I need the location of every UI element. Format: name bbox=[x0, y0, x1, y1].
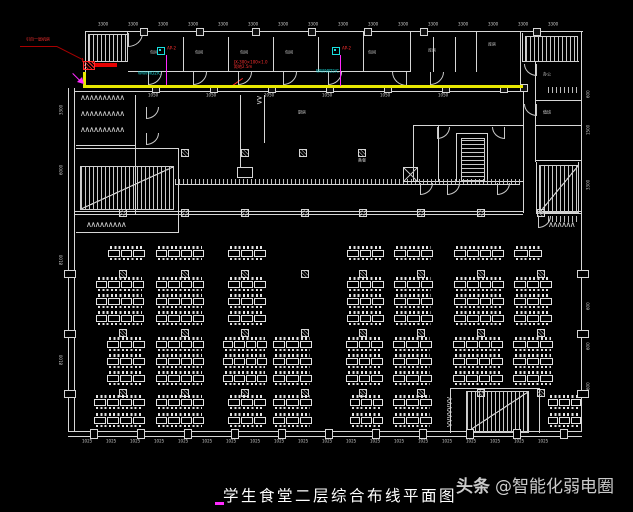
chair-row bbox=[396, 323, 431, 326]
chair-row bbox=[456, 294, 502, 297]
dining-table-strip bbox=[394, 294, 433, 308]
dim-label-top: 3300 bbox=[458, 22, 468, 27]
table bbox=[527, 315, 539, 322]
wall bbox=[175, 184, 520, 185]
table bbox=[228, 281, 240, 288]
table bbox=[228, 250, 240, 257]
table bbox=[540, 341, 553, 348]
table bbox=[181, 358, 192, 365]
table bbox=[156, 399, 167, 406]
table bbox=[168, 399, 179, 406]
chair-row bbox=[98, 323, 142, 326]
table bbox=[347, 298, 359, 305]
table bbox=[181, 375, 192, 382]
room-label: 备餐 bbox=[358, 158, 366, 163]
structural-column bbox=[417, 209, 425, 217]
table-row bbox=[453, 358, 503, 365]
structural-column bbox=[181, 209, 189, 217]
chair-row bbox=[275, 425, 310, 428]
door-arc bbox=[146, 133, 159, 145]
table bbox=[223, 375, 233, 382]
chair-row bbox=[515, 371, 551, 374]
table bbox=[350, 399, 360, 406]
table bbox=[393, 358, 405, 365]
table-row bbox=[514, 298, 552, 305]
table bbox=[371, 341, 383, 348]
table bbox=[540, 281, 552, 288]
table-row bbox=[347, 281, 384, 288]
table bbox=[479, 358, 491, 365]
dim-label-bottom: 1025 bbox=[202, 439, 212, 444]
chair-row bbox=[275, 383, 310, 386]
chair-row bbox=[456, 311, 502, 314]
wall bbox=[456, 133, 488, 134]
table bbox=[479, 341, 491, 348]
table bbox=[540, 358, 553, 365]
chair-row bbox=[516, 323, 550, 326]
chair-row bbox=[275, 395, 310, 398]
chair-row bbox=[109, 349, 143, 352]
table bbox=[393, 341, 405, 348]
dining-table-strip bbox=[454, 277, 504, 291]
table bbox=[359, 358, 371, 365]
table bbox=[193, 399, 204, 406]
table bbox=[420, 399, 432, 406]
table bbox=[254, 250, 266, 257]
chair-row bbox=[395, 383, 430, 386]
dining-table-strip bbox=[514, 246, 542, 260]
table bbox=[480, 315, 492, 322]
dim-label-bottom: 1025 bbox=[178, 439, 188, 444]
chair-row bbox=[348, 371, 381, 374]
chair-row bbox=[456, 289, 502, 292]
table bbox=[407, 250, 419, 257]
window-mullion bbox=[278, 429, 286, 439]
table bbox=[420, 341, 432, 348]
table bbox=[168, 281, 179, 288]
dining-table-strip bbox=[393, 337, 432, 351]
table-row bbox=[394, 298, 433, 305]
table bbox=[94, 399, 106, 406]
dining-table-strip bbox=[228, 277, 266, 291]
table bbox=[168, 341, 179, 348]
staircase bbox=[539, 165, 579, 213]
window-mullion bbox=[577, 270, 589, 278]
table bbox=[372, 250, 384, 257]
table bbox=[406, 399, 418, 406]
table bbox=[241, 250, 253, 257]
dim-label-bottom: 1025 bbox=[226, 439, 236, 444]
distribution-box bbox=[83, 61, 95, 70]
table bbox=[394, 298, 406, 305]
chair-row bbox=[456, 306, 502, 309]
door-arc bbox=[146, 107, 159, 119]
fixture-zigzag: ∧∧∧∧∧∧∧∧∧∧ bbox=[80, 127, 124, 133]
watermark-handle: @智能化弱电圈 bbox=[495, 477, 614, 497]
dining-table-strip bbox=[454, 294, 504, 308]
room-label: 包间 bbox=[195, 50, 203, 55]
chair-row bbox=[230, 425, 264, 428]
chair-row bbox=[98, 277, 142, 280]
dining-table-strip bbox=[156, 294, 204, 308]
table bbox=[479, 375, 491, 382]
dim-label-bottom: 1025 bbox=[370, 439, 380, 444]
room-label: 1050 bbox=[264, 93, 274, 98]
dining-table-strip bbox=[393, 354, 432, 368]
dining-table-strip bbox=[107, 337, 145, 351]
table bbox=[108, 250, 120, 257]
wall bbox=[237, 167, 253, 168]
chair-row bbox=[158, 277, 202, 280]
table bbox=[273, 341, 285, 348]
wall-mark bbox=[364, 28, 372, 36]
window-mullion bbox=[513, 429, 521, 439]
table bbox=[168, 358, 179, 365]
chair-row bbox=[396, 258, 431, 261]
cable-tray-vertical bbox=[83, 72, 86, 86]
cable-run-label: WW/WD2/C bbox=[316, 69, 339, 74]
table bbox=[181, 281, 192, 288]
chair-row bbox=[230, 413, 264, 416]
dim-label-bottom: 1025 bbox=[490, 439, 500, 444]
wall bbox=[76, 148, 178, 149]
watermark-brand: 头条 bbox=[456, 477, 490, 497]
table bbox=[360, 281, 372, 288]
table-row bbox=[273, 358, 312, 365]
table bbox=[300, 417, 312, 424]
dim-label-top: 3300 bbox=[518, 22, 528, 27]
dining-table-strip bbox=[156, 371, 204, 385]
table bbox=[156, 341, 167, 348]
stair-diagonal bbox=[467, 392, 528, 432]
dining-table-strip bbox=[156, 337, 204, 351]
chair-row bbox=[348, 337, 381, 340]
dim-label-bottom: 1025 bbox=[346, 439, 356, 444]
table bbox=[228, 315, 240, 322]
chair-row bbox=[395, 413, 430, 416]
table bbox=[300, 341, 312, 348]
dining-table-strip bbox=[156, 246, 204, 260]
table bbox=[168, 250, 179, 257]
table-row bbox=[346, 341, 383, 348]
table bbox=[254, 417, 266, 424]
table bbox=[420, 417, 432, 424]
chair-row bbox=[550, 425, 579, 428]
wall-mark bbox=[533, 28, 541, 36]
table bbox=[394, 250, 406, 257]
riser-line bbox=[340, 55, 341, 86]
structural-column bbox=[301, 329, 309, 337]
wall bbox=[183, 37, 184, 72]
table-row bbox=[347, 315, 384, 322]
chair-row bbox=[395, 354, 430, 357]
chair-row bbox=[455, 337, 501, 340]
structural-column bbox=[359, 209, 367, 217]
door-arc bbox=[283, 72, 297, 85]
chair-row bbox=[455, 366, 501, 369]
table bbox=[466, 375, 478, 382]
feed-line bbox=[20, 46, 57, 47]
table-row bbox=[107, 341, 145, 348]
dim-label-top: 3300 bbox=[278, 22, 288, 27]
dining-table-strip bbox=[514, 311, 552, 325]
table bbox=[273, 417, 285, 424]
window-mullion bbox=[64, 330, 76, 338]
chair-row bbox=[225, 383, 265, 386]
table bbox=[223, 341, 233, 348]
table bbox=[514, 281, 526, 288]
table-row bbox=[513, 358, 553, 365]
hatch-band bbox=[548, 87, 580, 93]
chair-row bbox=[158, 354, 202, 357]
table bbox=[193, 250, 204, 257]
table-row bbox=[514, 250, 542, 257]
chair-row bbox=[349, 323, 382, 326]
fixture-zigzag: ∧∧∧∧∧∧∧∧∧ bbox=[86, 222, 125, 228]
table bbox=[491, 341, 503, 348]
chair-row bbox=[225, 349, 265, 352]
room-label: 厨房 bbox=[298, 110, 306, 115]
wall bbox=[535, 160, 581, 161]
table-row bbox=[454, 315, 504, 322]
table-row bbox=[94, 399, 145, 406]
table-row bbox=[156, 315, 204, 322]
table bbox=[133, 298, 144, 305]
wall bbox=[74, 88, 75, 432]
table-row bbox=[350, 399, 383, 406]
chair-row bbox=[158, 349, 202, 352]
room-label: 库房 bbox=[488, 42, 496, 47]
dining-table-strip bbox=[273, 354, 312, 368]
room-label: 办公 bbox=[543, 72, 551, 77]
wall bbox=[178, 148, 179, 233]
door-arc bbox=[238, 72, 252, 85]
table bbox=[96, 298, 107, 305]
door-arc bbox=[392, 72, 407, 86]
dim-label-bottom: 1025 bbox=[322, 439, 332, 444]
cable-box-symbol bbox=[332, 47, 340, 55]
wall bbox=[76, 232, 178, 233]
table bbox=[347, 315, 359, 322]
dim-label-top: 3300 bbox=[398, 22, 408, 27]
table bbox=[372, 281, 384, 288]
chair-row bbox=[550, 407, 579, 410]
wall-mark bbox=[420, 28, 428, 36]
chair-row bbox=[395, 349, 430, 352]
chair-row bbox=[158, 371, 202, 374]
table-row bbox=[223, 375, 267, 382]
window-mullion bbox=[90, 429, 98, 439]
table bbox=[421, 281, 433, 288]
table bbox=[540, 375, 553, 382]
chair-row bbox=[230, 323, 264, 326]
chair-row bbox=[515, 366, 551, 369]
table-row bbox=[94, 417, 145, 424]
table bbox=[108, 315, 119, 322]
chair-row bbox=[230, 311, 264, 314]
dining-table-strip bbox=[96, 311, 144, 325]
wall bbox=[252, 167, 253, 177]
table bbox=[548, 399, 558, 406]
wall bbox=[74, 211, 523, 212]
table bbox=[133, 250, 145, 257]
table bbox=[120, 399, 132, 406]
table bbox=[286, 399, 298, 406]
structural-column bbox=[477, 209, 485, 217]
table bbox=[454, 298, 466, 305]
wall bbox=[237, 167, 238, 177]
table bbox=[454, 281, 466, 288]
fixture-zigzag: ∧∧∧∧∧∧∧ bbox=[446, 396, 452, 427]
dim-label-left: 8100 bbox=[59, 255, 64, 265]
table bbox=[360, 298, 372, 305]
table bbox=[156, 281, 167, 288]
table bbox=[121, 250, 133, 257]
dining-table-strip bbox=[393, 395, 432, 409]
table bbox=[421, 250, 433, 257]
table-row bbox=[347, 250, 384, 257]
dining-table-strip bbox=[228, 395, 266, 409]
table bbox=[361, 417, 371, 424]
dining-table-strip bbox=[394, 311, 433, 325]
table bbox=[420, 375, 432, 382]
wall bbox=[456, 133, 457, 182]
wall bbox=[85, 31, 583, 32]
chair-row bbox=[455, 354, 501, 357]
dim-label-bottom: 1025 bbox=[154, 439, 164, 444]
structural-column bbox=[119, 209, 127, 217]
table bbox=[133, 417, 145, 424]
structural-column bbox=[181, 329, 189, 337]
chair-row bbox=[230, 407, 264, 410]
chair-row bbox=[516, 258, 540, 261]
chair-row bbox=[109, 371, 143, 374]
table bbox=[466, 358, 478, 365]
table-row bbox=[107, 358, 145, 365]
chair-row bbox=[275, 371, 310, 374]
chair-row bbox=[158, 306, 202, 309]
table bbox=[246, 375, 256, 382]
table bbox=[156, 417, 167, 424]
dining-table-strip bbox=[393, 371, 432, 385]
table bbox=[121, 315, 132, 322]
room-label: 1050 bbox=[148, 93, 158, 98]
table bbox=[168, 417, 179, 424]
table bbox=[491, 375, 503, 382]
table bbox=[491, 358, 503, 365]
chair-row bbox=[158, 289, 202, 292]
chair-row bbox=[349, 311, 382, 314]
table bbox=[359, 375, 371, 382]
table bbox=[467, 250, 479, 257]
wall bbox=[450, 388, 540, 389]
table bbox=[559, 399, 569, 406]
table-row bbox=[228, 281, 266, 288]
table bbox=[571, 399, 581, 406]
wall bbox=[522, 33, 523, 62]
door-arc bbox=[193, 72, 207, 85]
table-row bbox=[156, 375, 204, 382]
dining-table-strip bbox=[94, 395, 145, 409]
dim-label-top: 3300 bbox=[308, 22, 318, 27]
table bbox=[480, 298, 492, 305]
chair-row bbox=[158, 395, 202, 398]
dining-table-strip bbox=[223, 354, 267, 368]
chair-row bbox=[395, 395, 430, 398]
table bbox=[406, 341, 418, 348]
wall bbox=[410, 31, 411, 72]
room-label: 1050 bbox=[322, 93, 332, 98]
table bbox=[273, 358, 285, 365]
dim-label-bottom: 1025 bbox=[106, 439, 116, 444]
dining-table-strip bbox=[393, 413, 432, 427]
table bbox=[107, 399, 119, 406]
table bbox=[234, 375, 244, 382]
window-mullion bbox=[466, 429, 474, 439]
dining-table-strip bbox=[394, 246, 433, 260]
chair-row bbox=[352, 413, 381, 416]
table bbox=[527, 281, 539, 288]
staircase bbox=[88, 34, 128, 62]
table bbox=[514, 315, 526, 322]
table bbox=[407, 315, 419, 322]
table bbox=[394, 281, 406, 288]
dim-label-bottom: 1025 bbox=[442, 439, 452, 444]
table bbox=[513, 341, 526, 348]
dining-table-strip bbox=[94, 413, 145, 427]
chair-row bbox=[158, 366, 202, 369]
diag-line bbox=[57, 46, 84, 61]
table bbox=[492, 298, 504, 305]
chair-row bbox=[395, 425, 430, 428]
table bbox=[286, 417, 298, 424]
dim-label-bottom: 1025 bbox=[130, 439, 140, 444]
dining-table-strip bbox=[228, 413, 266, 427]
table-row bbox=[156, 281, 204, 288]
chair-row bbox=[352, 407, 381, 410]
table bbox=[156, 298, 167, 305]
chair-row bbox=[352, 395, 381, 398]
dim-label-right: 600 bbox=[586, 342, 591, 350]
table bbox=[254, 298, 266, 305]
table bbox=[246, 358, 256, 365]
watermark: 头条@智能化弱电圈 bbox=[456, 472, 614, 497]
table-row bbox=[273, 341, 312, 348]
dim-label-left: 6000 bbox=[59, 165, 64, 175]
table bbox=[360, 250, 372, 257]
chair-row bbox=[225, 354, 265, 357]
table bbox=[407, 298, 419, 305]
chair-row bbox=[225, 371, 265, 374]
chair-row bbox=[158, 407, 202, 410]
chair-row bbox=[158, 337, 202, 340]
table-row bbox=[156, 399, 204, 406]
structural-column bbox=[477, 329, 485, 337]
chair-row bbox=[349, 306, 382, 309]
table-row bbox=[393, 341, 432, 348]
chair-row bbox=[230, 258, 264, 261]
chair-row bbox=[352, 425, 381, 428]
wall bbox=[581, 31, 582, 432]
chair-row bbox=[230, 246, 264, 249]
wall bbox=[535, 100, 581, 101]
table bbox=[467, 315, 479, 322]
structural-column bbox=[358, 149, 366, 157]
table-row bbox=[156, 250, 204, 257]
chair-row bbox=[349, 277, 382, 280]
table bbox=[273, 399, 285, 406]
table bbox=[540, 315, 552, 322]
